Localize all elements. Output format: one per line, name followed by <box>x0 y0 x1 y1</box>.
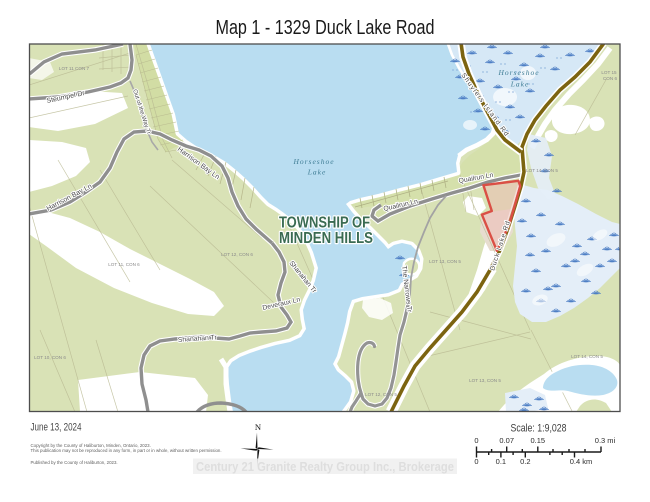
svg-text:MINDEN HILLS: MINDEN HILLS <box>279 230 373 247</box>
svg-text:Map 1 - 1329 Duck Lake Road: Map 1 - 1329 Duck Lake Road <box>216 16 435 39</box>
svg-text:0.2: 0.2 <box>520 457 530 466</box>
svg-text:LOT 11 CON 7: LOT 11 CON 7 <box>59 66 90 71</box>
svg-text:N: N <box>255 422 262 432</box>
svg-text:LOT 13, CON 5: LOT 13, CON 5 <box>429 259 461 264</box>
svg-text:CON 6: CON 6 <box>603 76 617 81</box>
svg-text:LOT 13, CON 5: LOT 13, CON 5 <box>469 378 501 383</box>
svg-text:LOT 12, CON 6: LOT 12, CON 6 <box>221 252 253 257</box>
svg-text:0.15: 0.15 <box>530 436 545 445</box>
svg-text:Century 21 Granite Realty Grou: Century 21 Granite Realty Group Inc., Br… <box>196 459 454 474</box>
svg-text:LOT 10, CON 6: LOT 10, CON 6 <box>34 355 66 360</box>
svg-text:LOT 14, CON 5: LOT 14, CON 5 <box>526 168 558 173</box>
svg-text:Horseshoe: Horseshoe <box>292 157 334 166</box>
svg-text:Scale: 1:9,028: Scale: 1:9,028 <box>511 423 567 435</box>
svg-text:Horseshoe: Horseshoe <box>497 68 539 77</box>
svg-text:This publication may not be re: This publication may not be reproduced i… <box>31 448 222 453</box>
svg-text:LOT 15: LOT 15 <box>601 70 617 75</box>
svg-text:0.1: 0.1 <box>496 457 506 466</box>
svg-text:Lake: Lake <box>307 168 327 177</box>
svg-text:Published by the County of Hal: Published by the County of Haliburton, 2… <box>31 460 118 465</box>
svg-text:0.4 km: 0.4 km <box>570 457 593 466</box>
svg-text:0: 0 <box>474 436 478 445</box>
svg-text:LOT 11, CON 6: LOT 11, CON 6 <box>108 262 140 267</box>
svg-text:LOT 12, CON 5: LOT 12, CON 5 <box>365 392 397 397</box>
svg-text:0.3 mi: 0.3 mi <box>595 436 616 445</box>
svg-text:LOT 14, CON 5: LOT 14, CON 5 <box>571 354 603 359</box>
svg-text:0.07: 0.07 <box>499 436 514 445</box>
svg-text:TOWNSHIP OF: TOWNSHIP OF <box>279 215 370 232</box>
svg-text:0: 0 <box>474 457 478 466</box>
svg-text:June 13, 2024: June 13, 2024 <box>31 422 82 434</box>
svg-text:Lake: Lake <box>510 80 530 89</box>
